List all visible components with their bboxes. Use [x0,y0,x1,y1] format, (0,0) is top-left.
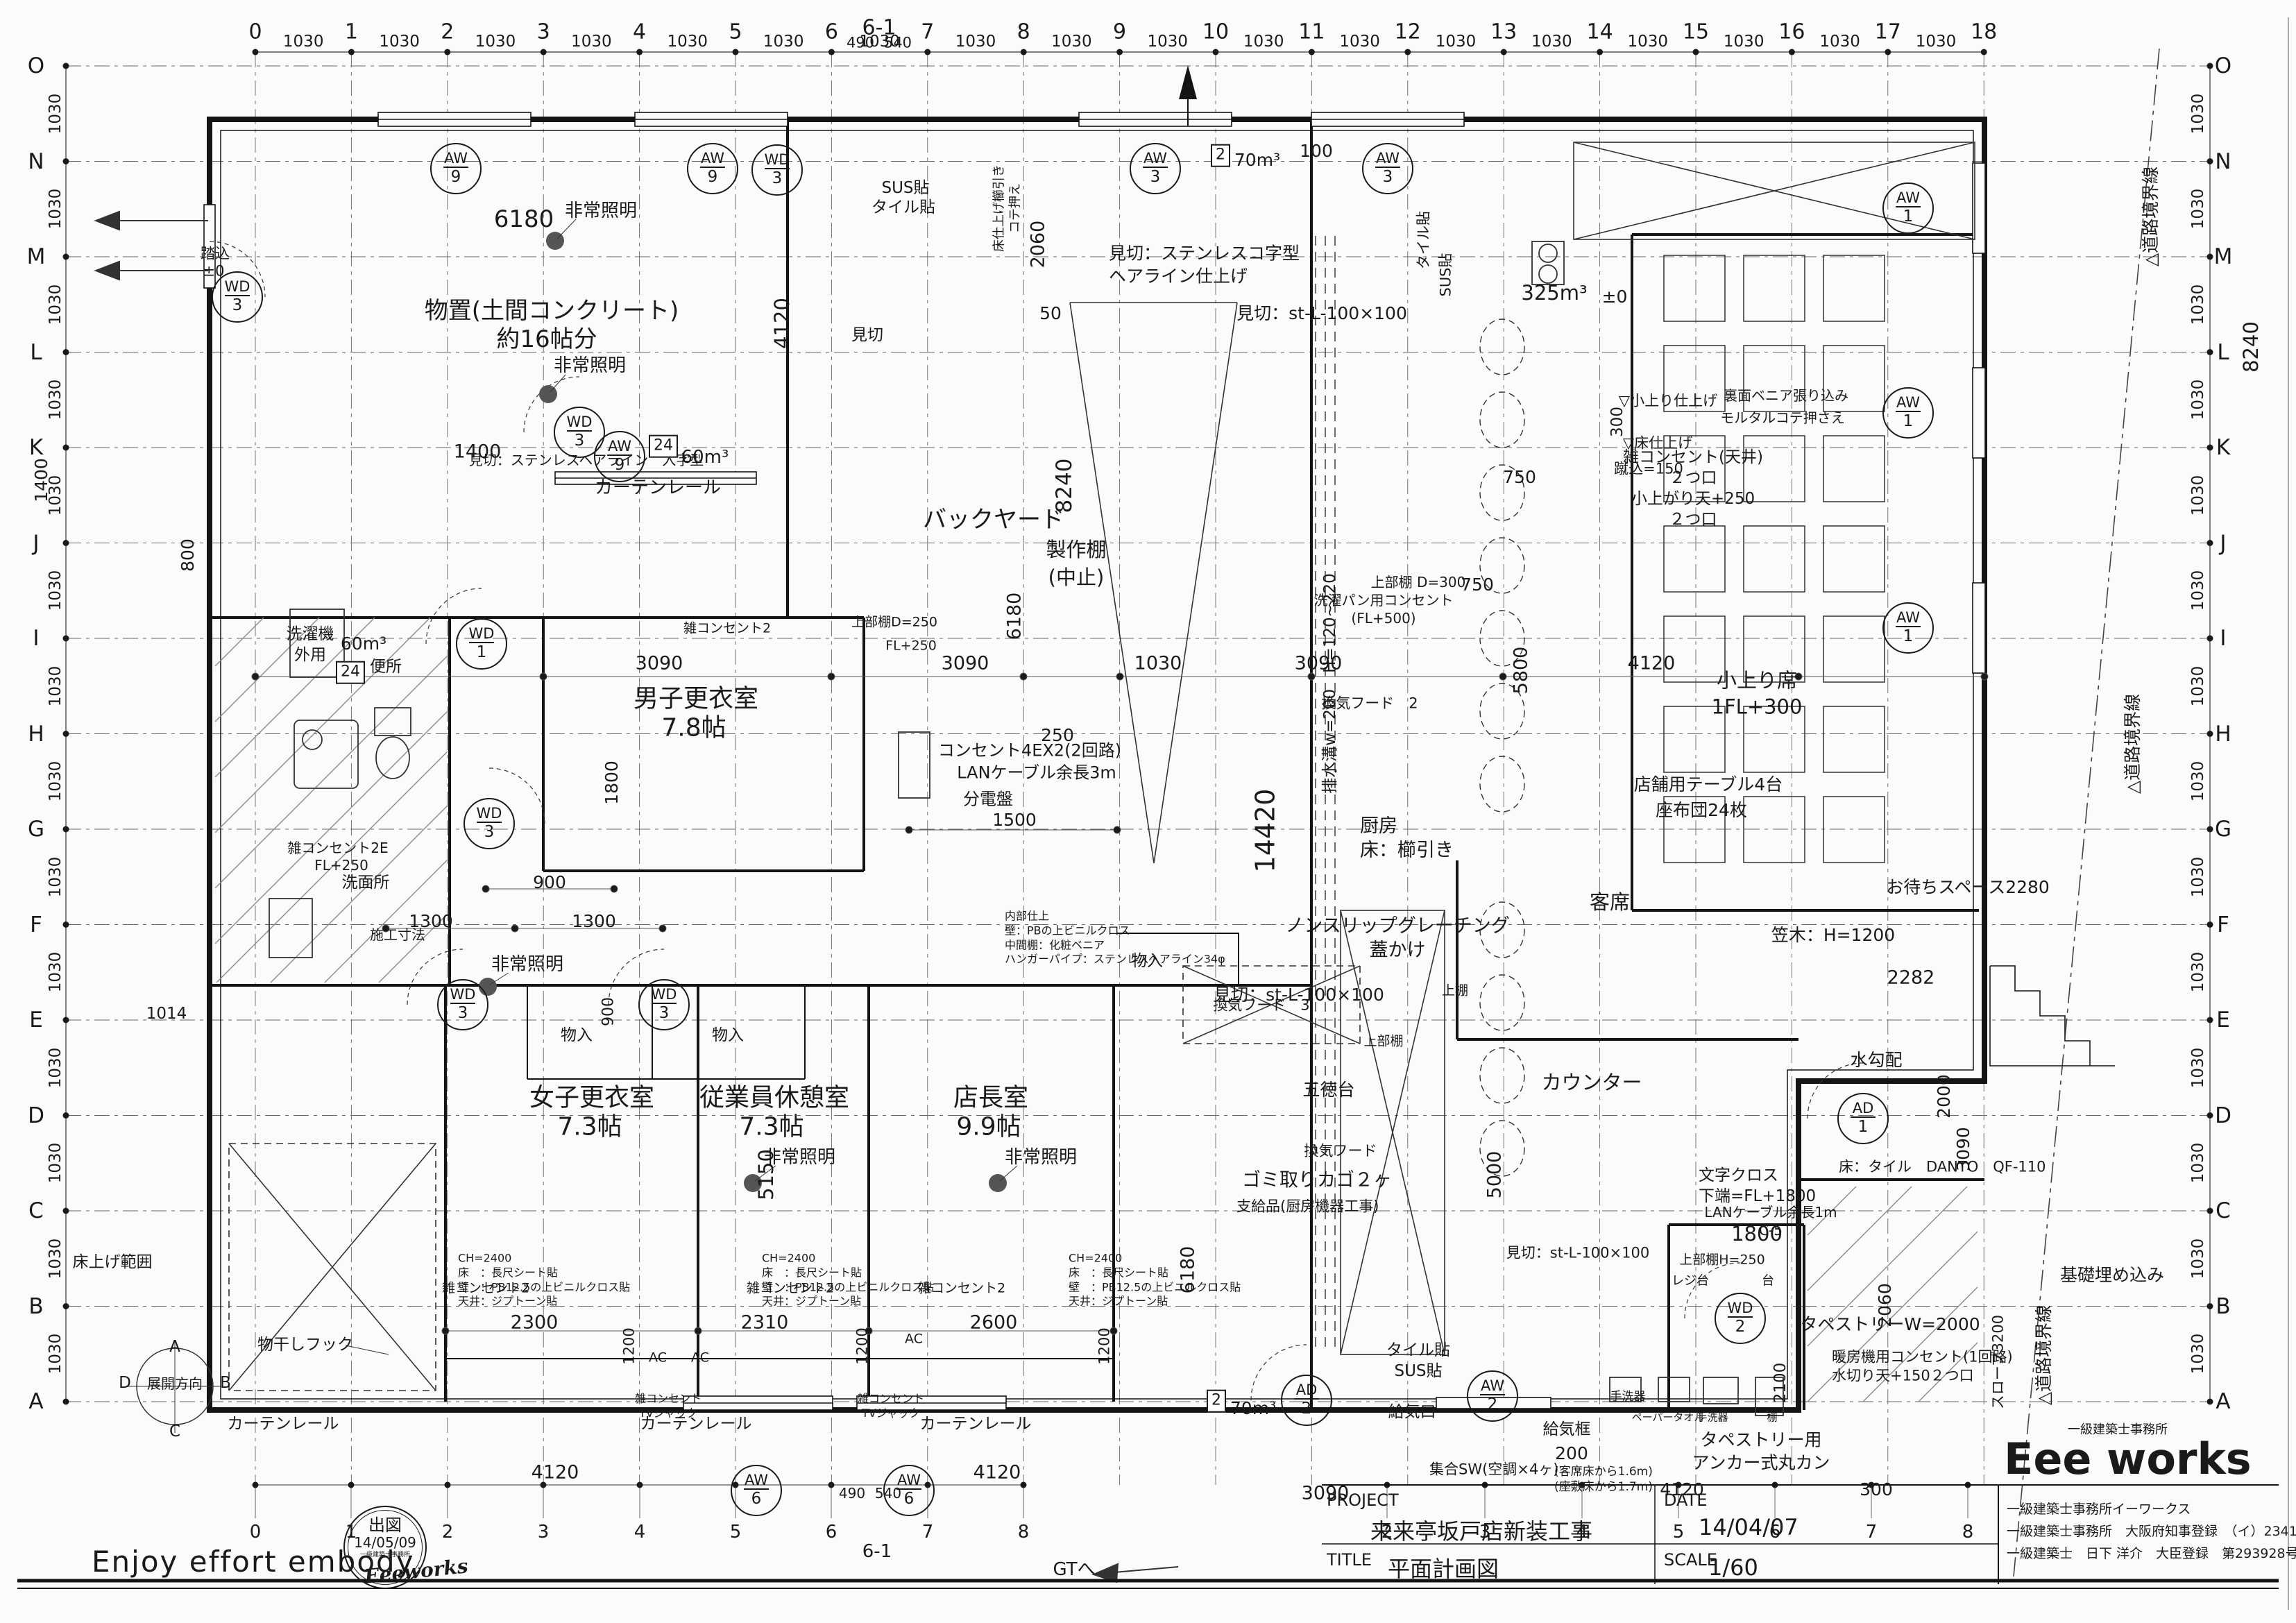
grid-number-top: 8 [1017,20,1030,44]
grid-letter-right: L [2217,340,2229,365]
grid-letter-left: D [28,1103,44,1128]
grid-dim-top: 1030 [763,33,804,51]
grid-dim-top: 1030 [283,33,324,51]
grid-dim-top: 1030 [1243,33,1284,51]
grid-dim-left: 1030 [46,1143,65,1184]
grid-dim-right: 1030 [2189,380,2207,420]
company-registration-1: 一級建築士事務所イーワークス [2007,1499,2191,1518]
grid-dim-right: 1030 [2189,284,2207,325]
grid-dim-left: 1030 [46,1238,65,1279]
drawing-title-label: TITLE [1327,1550,1372,1570]
grid-dim-left: 1030 [46,93,65,134]
grid-number-top: 14 [1587,20,1613,44]
grid-number-top: 0 [248,20,262,44]
grid-number-top: 13 [1490,20,1517,44]
grid-number-top: 6 [825,20,838,44]
grid-dim-right: 1030 [2189,952,2207,993]
grid-letter-right: G [2215,817,2231,842]
grid-dim-top: 1030 [1531,33,1572,51]
grid-number-top: 15 [1683,20,1709,44]
grid-number-top: 9 [1113,20,1126,44]
grid-letter-left: C [28,1198,44,1223]
project-name: 来来亭坂戸店新装工事 [1370,1514,1592,1546]
grid-letter-right: I [2220,626,2226,651]
grid-letter-left: G [28,817,44,842]
grid-dim-top: 1030 [475,33,516,51]
grid-dim-top: 1030 [859,33,900,51]
grid-dim-top: 1030 [1436,33,1477,51]
grid-number-top: 7 [921,20,934,44]
grid-letter-left: N [28,149,44,174]
grid-number-bottom: 8 [1018,1522,1030,1543]
scale-value: 1/60 [1708,1554,1758,1581]
grid-dim-left: 1030 [46,665,65,706]
grid-letter-right: N [2215,149,2231,174]
grid-labels-layer: 0103011030210303103041030510306103071030… [0,0,2296,1623]
grid-number-top: 2 [441,20,454,44]
grid-letter-left: I [33,626,39,651]
floor-plan-sheet: 6-14905406180非常照明物置(土間コンクリート)約16帖分非常照明14… [0,0,2296,1623]
company-registration-2: 一級建築士事務所 大阪府知事登録 （イ）23415号 [2007,1521,2296,1540]
grid-dim-right: 1030 [2189,761,2207,802]
grid-letter-right: A [2216,1389,2230,1414]
grid-number-top: 1 [345,20,358,44]
grid-dim-left: 1030 [46,380,65,420]
grid-dim-top: 1030 [955,33,996,51]
grid-dim-right: 1030 [2189,189,2207,230]
grid-number-bottom: 6 [826,1522,837,1543]
grid-dim-left: 1030 [46,856,65,897]
grid-number-top: 10 [1202,20,1229,44]
grid-letter-left: A [28,1389,43,1414]
grid-number-bottom: 3 [538,1522,550,1543]
grid-dim-right: 1030 [2189,1334,2207,1375]
grid-letter-left: E [29,1008,43,1033]
grid-letter-right: J [2220,531,2226,556]
grid-letter-left: M [27,244,46,269]
grid-dim-top: 1030 [1051,33,1092,51]
grid-letter-right: K [2216,435,2230,460]
grid-dim-left: 1030 [46,475,65,516]
grid-dim-right: 1030 [2189,1143,2207,1184]
grid-letter-left: B [28,1294,43,1319]
grid-number-top: 11 [1298,20,1325,44]
grid-number-top: 12 [1395,20,1421,44]
grid-dim-top: 1030 [1628,33,1669,51]
company-registration-3: 一級建築士 日下 洋介 大臣登録 第293928号 [2007,1543,2296,1562]
grid-number-bottom: 8 [1962,1522,1974,1543]
grid-dim-left: 1030 [46,952,65,993]
grid-dim-right: 1030 [2189,665,2207,706]
grid-subaxis-bottom: 6-1 [862,1541,892,1562]
grid-dim-top: 1030 [1148,33,1189,51]
grid-dim-top: 1030 [1339,33,1380,51]
date-value: 14/04/07 [1699,1514,1798,1540]
grid-number-top: 5 [729,20,742,44]
grid-number-top: 3 [537,20,550,44]
date-label: DATE [1664,1490,1707,1510]
grid-dim-top: 1030 [571,33,612,51]
grid-dim-top: 1030 [379,33,420,51]
grid-number-bottom: 7 [922,1522,934,1543]
grid-number-bottom: 0 [250,1522,262,1543]
grid-number-top: 17 [1875,20,1901,44]
grid-number-top: 4 [633,20,646,44]
grid-letter-left: F [30,912,42,937]
grid-number-bottom: 7 [1866,1522,1878,1543]
drawing-title: 平面計画図 [1388,1552,1499,1583]
grid-letter-right: B [2216,1294,2230,1319]
grid-letter-left: J [33,531,39,556]
grid-dim-right: 1030 [2189,93,2207,134]
grid-letter-left: L [30,340,42,365]
company-logo: Eee works [2004,1434,2252,1484]
grid-number-bottom: 5 [730,1522,742,1543]
grid-dim-left: 1030 [46,284,65,325]
grid-letter-right: C [2216,1198,2231,1223]
grid-dim-top: 1030 [1724,33,1764,51]
grid-dim-left: 1030 [46,761,65,802]
grid-letter-left: H [28,722,44,747]
grid-dim-top: 1030 [667,33,708,51]
grid-dim-left: 1030 [46,570,65,611]
grid-letter-right: O [2215,53,2231,78]
grid-dim-left: 1030 [46,1047,65,1088]
grid-dim-right: 1030 [2189,570,2207,611]
project-label: PROJECT [1327,1490,1399,1510]
grid-dim-right: 1030 [2189,1238,2207,1279]
grid-number-top: 16 [1778,20,1805,44]
company-tagline: Enjoy effort embody [92,1545,415,1579]
grid-dim-right: 1030 [2189,856,2207,897]
grid-letter-left: O [28,53,44,78]
grid-dim-top: 1030 [1819,33,1860,51]
grid-letter-right: D [2215,1103,2231,1128]
grid-letter-right: E [2216,1008,2230,1033]
grid-letter-right: M [2214,244,2233,269]
grid-letter-right: F [2217,912,2229,937]
grid-dim-top: 1030 [1916,33,1957,51]
grid-number-top: 18 [1971,20,1997,44]
grid-number-bottom: 5 [1673,1522,1685,1543]
stamp-title: 出図 [345,1517,425,1533]
grid-dim-right: 1030 [2189,475,2207,516]
grid-number-bottom: 4 [634,1522,646,1543]
grid-letter-left: K [29,435,43,460]
grid-letter-right: H [2215,722,2231,747]
grid-dim-right: 1030 [2189,1047,2207,1088]
grid-dim-left: 1030 [46,189,65,230]
grid-dim-left: 1030 [46,1334,65,1375]
grid-number-bottom: 2 [442,1522,454,1543]
